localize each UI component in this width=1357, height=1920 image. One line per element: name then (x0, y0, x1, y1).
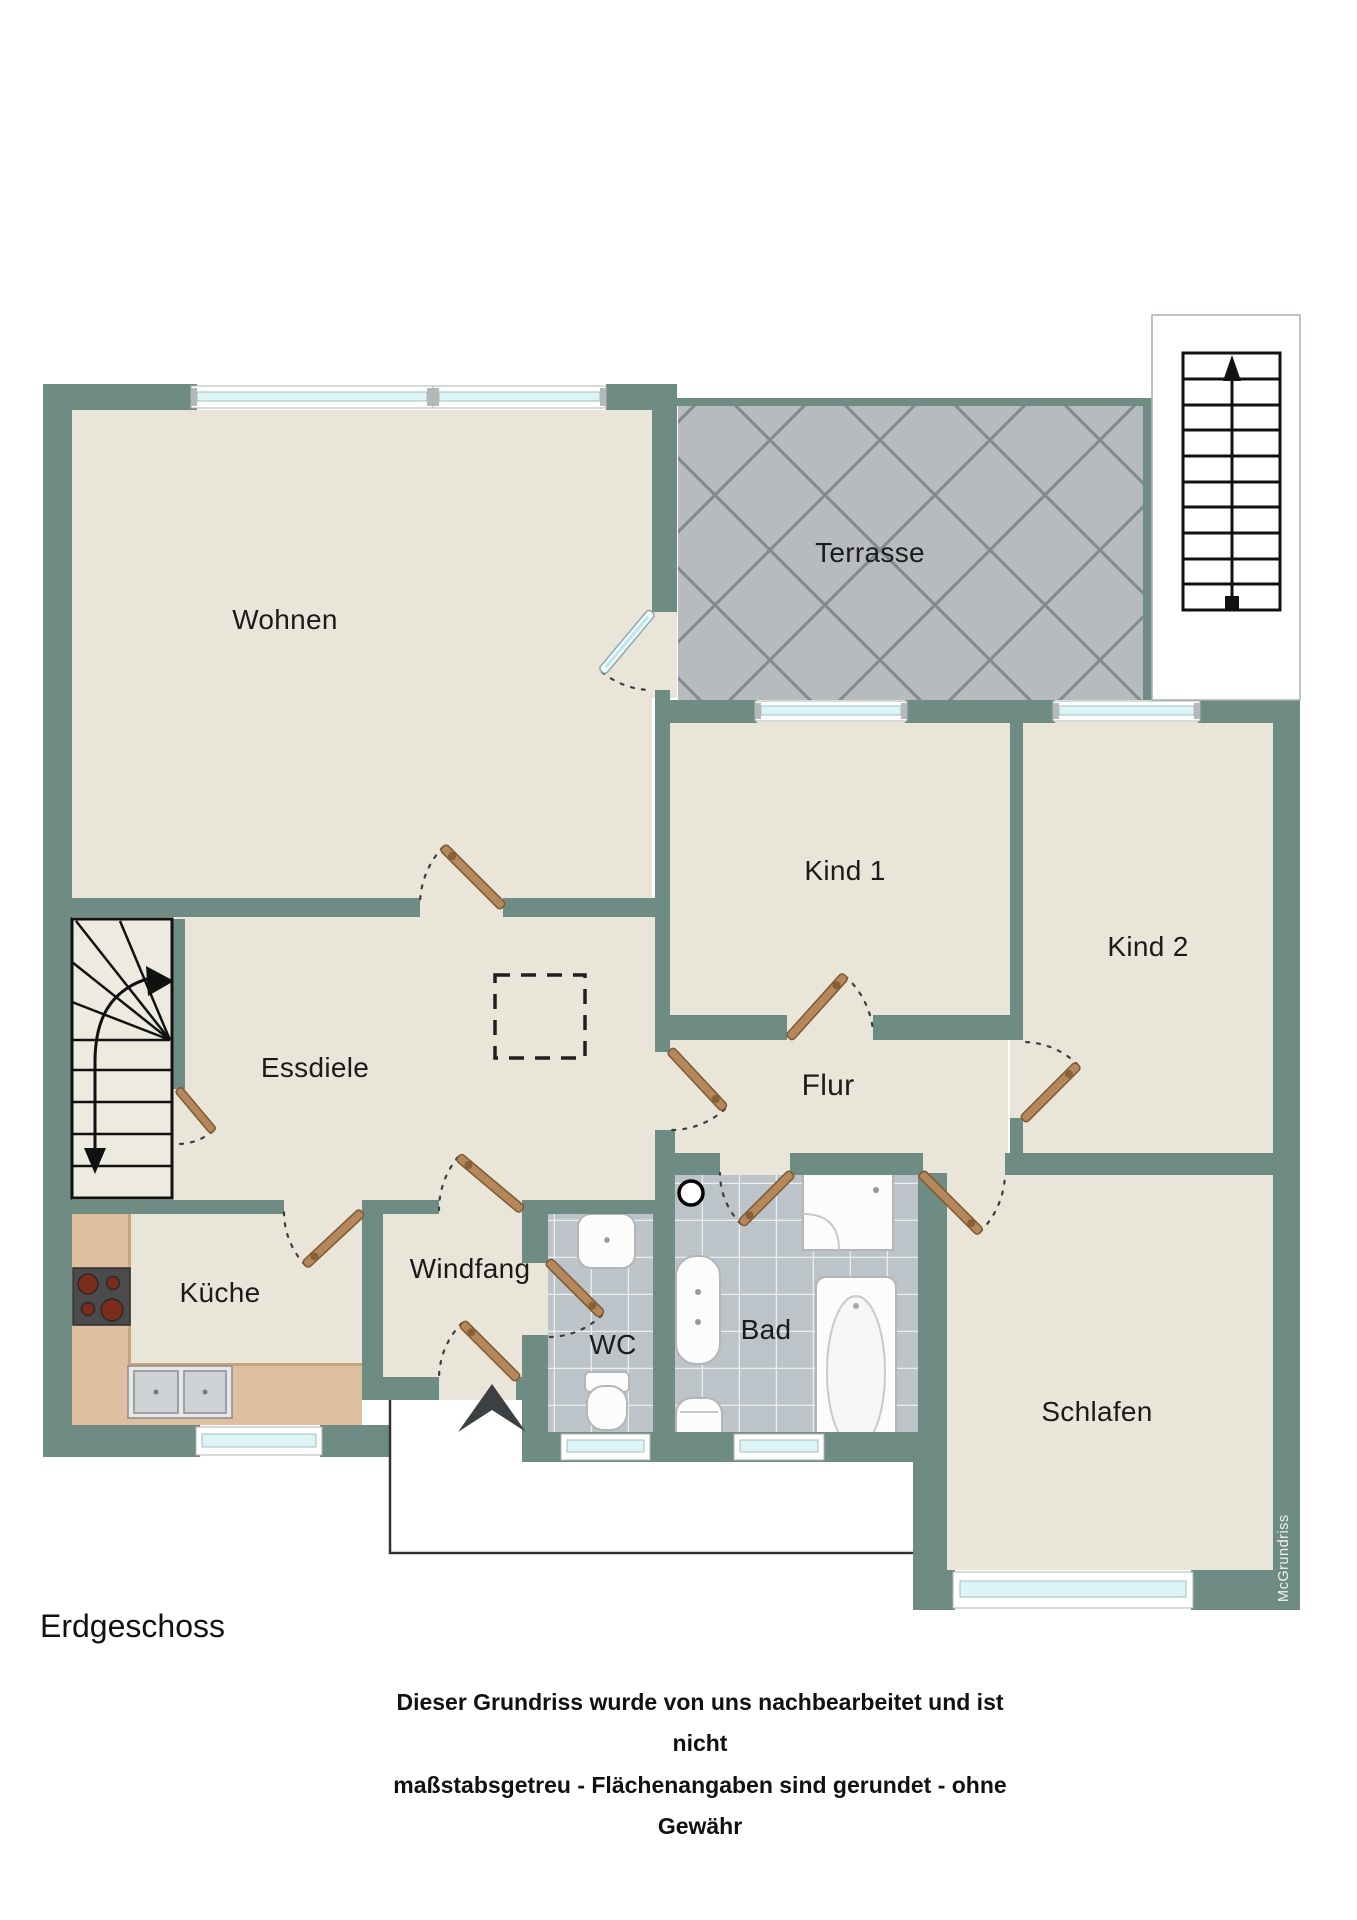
disclaimer-line-1: Dieser Grundriss wurde von uns nachbearb… (372, 1682, 1029, 1765)
wc-washbasin-icon (578, 1214, 635, 1268)
window-kind1 (755, 701, 907, 721)
floor-opening-schlafen-door (923, 1153, 1008, 1175)
kitchen-sink-icon (128, 1366, 232, 1418)
stove-icon (73, 1268, 130, 1325)
floor-opening-kind2-door (1010, 1038, 1023, 1118)
exterior-staircase (1152, 315, 1300, 700)
floor-title: Erdgeschoss (40, 1608, 225, 1645)
floor-opening-bad-door (720, 1153, 790, 1175)
room-label-kueche: Küche (180, 1277, 261, 1309)
floorplan-page: Wohnen Terrasse Kind 1 Kind 2 Essdiele F… (0, 0, 1357, 1920)
watermark: McGrundriss (1276, 1498, 1292, 1602)
radiator-icon (676, 1256, 720, 1364)
floor-wohnen (72, 410, 652, 898)
window-wohnen-2 (433, 386, 606, 408)
floor-windfang (383, 1214, 522, 1377)
room-label-wc: WC (589, 1329, 636, 1361)
floor-opening-essdiele-flur (655, 1052, 670, 1137)
floor-opening-entry-door (439, 1377, 516, 1400)
winding-staircase (72, 919, 174, 1198)
window-wohnen-1 (191, 386, 433, 408)
floor-opening-terrace-door (652, 610, 677, 698)
window-schlafen (953, 1572, 1193, 1608)
room-label-essdiele: Essdiele (261, 1052, 369, 1084)
floor-schlafen (947, 1175, 1273, 1570)
room-label-flur: Flur (802, 1069, 855, 1103)
window-wc (561, 1434, 650, 1460)
window-bad (734, 1434, 824, 1460)
bathtub-icon (816, 1277, 896, 1459)
room-label-kind1: Kind 1 (804, 855, 885, 887)
window-kueche (196, 1427, 322, 1455)
room-label-wohnen: Wohnen (232, 604, 338, 636)
room-label-bad: Bad (741, 1314, 792, 1346)
room-label-terrasse: Terrasse (815, 537, 925, 569)
room-label-windfang: Windfang (410, 1253, 531, 1285)
disclaimer-line-2: maßstabsgetreu - Flächenangaben sind ger… (372, 1765, 1029, 1848)
room-label-kind2: Kind 2 (1107, 931, 1188, 963)
room-label-schlafen: Schlafen (1041, 1396, 1152, 1428)
shower-icon (803, 1172, 893, 1250)
wc-toilet-icon (585, 1372, 629, 1430)
floor-opening-kueche-door (284, 1200, 362, 1214)
disclaimer: Dieser Grundriss wurde von uns nachbearb… (372, 1682, 1029, 1848)
column-symbol (679, 1181, 703, 1205)
window-kind2 (1053, 701, 1200, 721)
